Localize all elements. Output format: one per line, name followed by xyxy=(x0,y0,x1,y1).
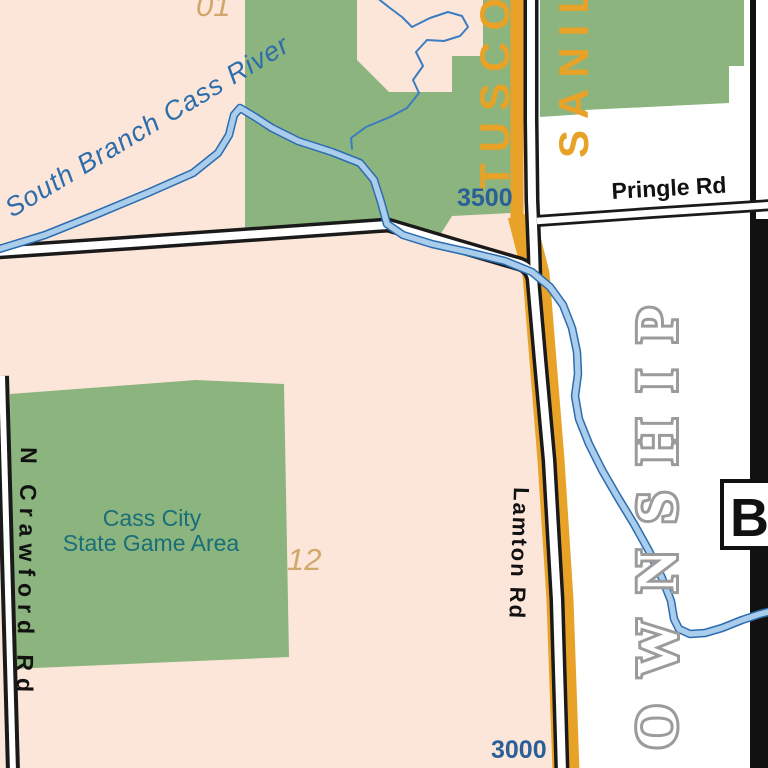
north-road-surface xyxy=(531,0,535,282)
county-name-tuscola: TUSCO xyxy=(471,0,518,189)
game-area-label-line2: State Game Area xyxy=(63,530,240,556)
lamton-road-label: Lamton Rd xyxy=(504,487,534,621)
section-number-12: 12 xyxy=(287,542,321,577)
crawford-road-label: N Crawford Rd xyxy=(12,447,42,699)
grid-number-3000: 3000 xyxy=(491,736,547,764)
county-map: B South Branch Cass River 01 12 3500 300… xyxy=(0,0,768,768)
game-area-label-line1: Cass City xyxy=(103,505,202,531)
county-map-canvas: B South Branch Cass River 01 12 3500 300… xyxy=(0,0,768,768)
township-label: TOWNSHIP xyxy=(624,280,689,768)
county-name-sanilac: SANIL xyxy=(550,0,597,158)
page-grid-letter: B xyxy=(730,488,768,548)
section-number-01: 01 xyxy=(196,0,230,23)
